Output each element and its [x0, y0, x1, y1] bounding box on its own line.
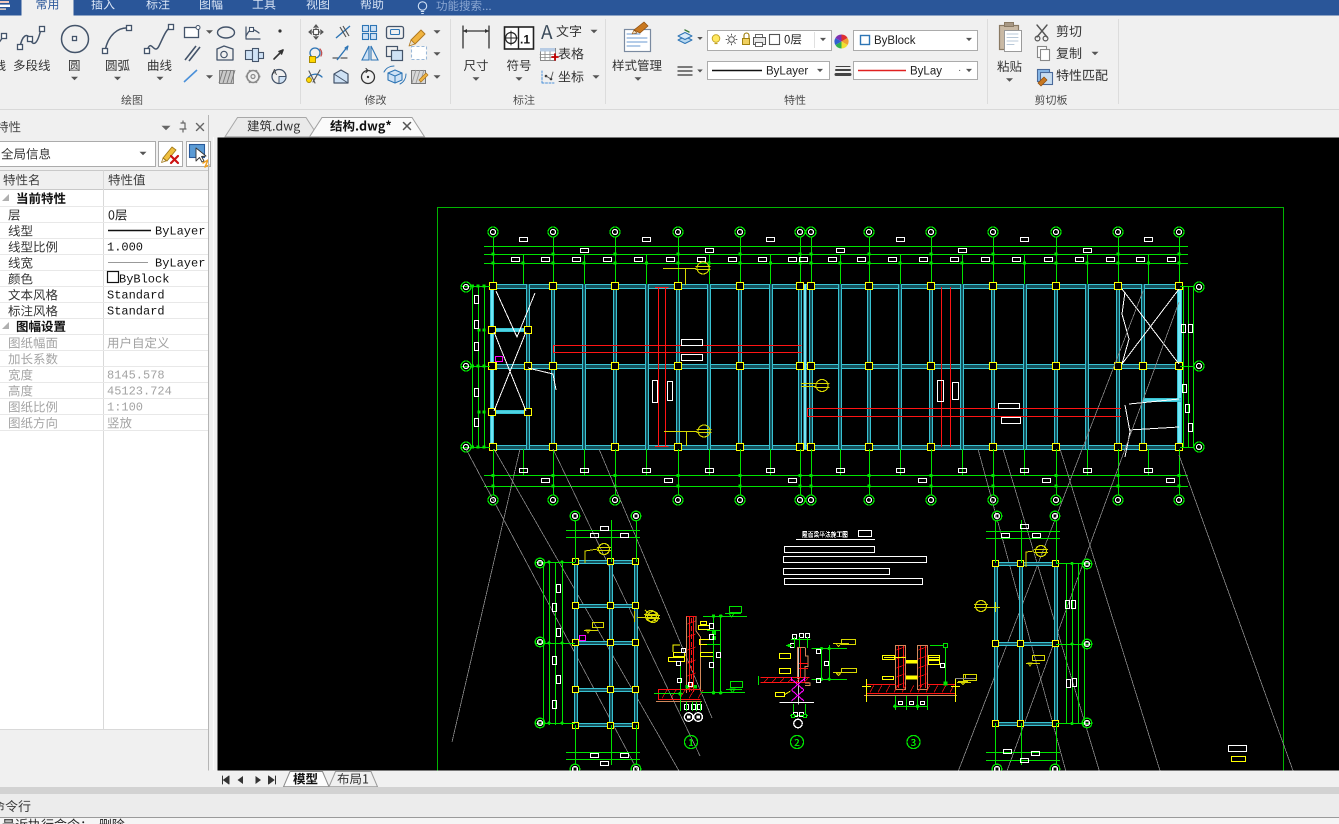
- svg-text:8145.578: 8145.578: [107, 369, 165, 383]
- svg-text:·: ·: [958, 65, 961, 76]
- svg-text:.1: .1: [520, 33, 530, 47]
- svg-text:45123.724: 45123.724: [107, 385, 172, 399]
- svg-text:ByBlock: ByBlock: [874, 35, 916, 47]
- svg-text:1.000: 1.000: [107, 241, 143, 255]
- svg-text:ByLayer: ByLayer: [155, 225, 205, 239]
- svg-text:ByBlock: ByBlock: [119, 273, 169, 287]
- svg-text:ByLayer: ByLayer: [155, 257, 205, 271]
- svg-text:Standard: Standard: [107, 289, 165, 303]
- svg-text:ByLay: ByLay: [910, 66, 942, 78]
- svg-text:1:100: 1:100: [107, 401, 143, 415]
- svg-text:ByLayer: ByLayer: [766, 66, 808, 78]
- svg-text:Standard: Standard: [107, 305, 165, 319]
